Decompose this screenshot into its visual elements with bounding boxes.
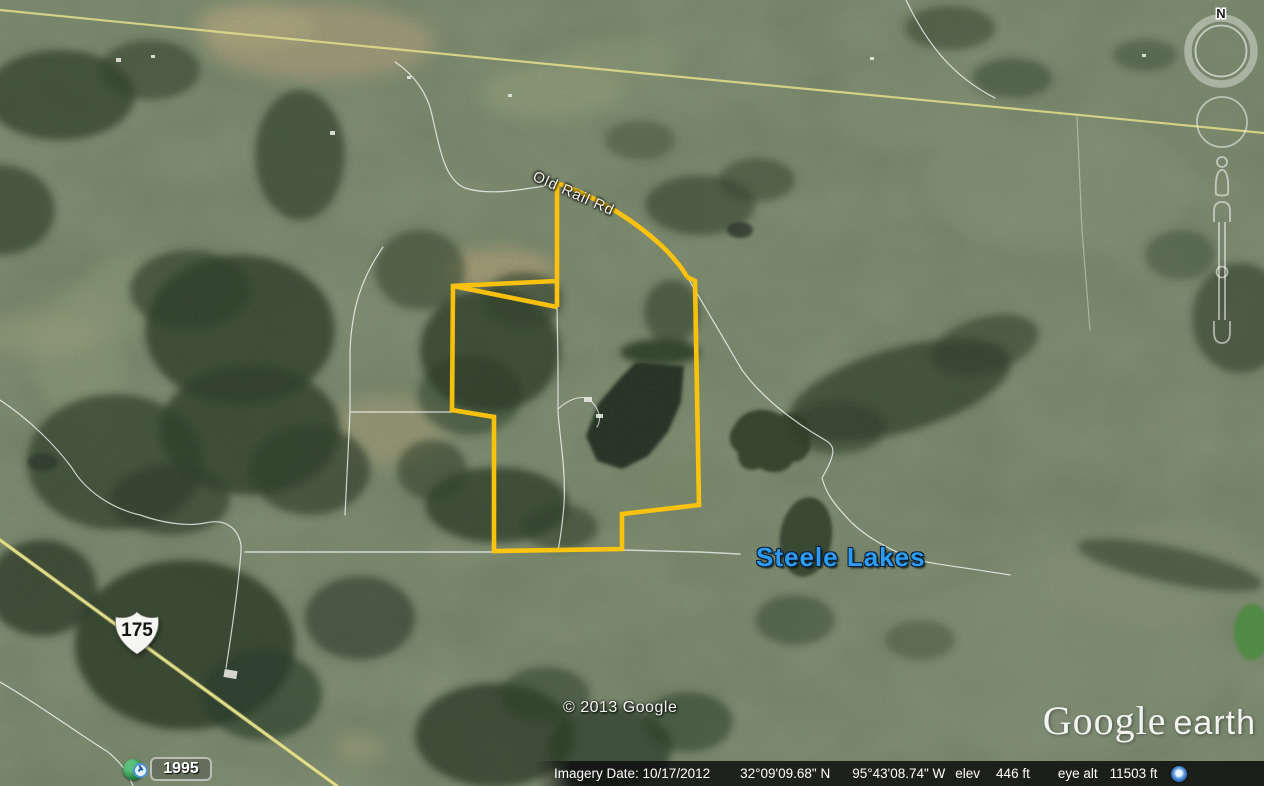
elev-label: elev <box>955 766 980 781</box>
historical-imagery-marker[interactable]: 1995 <box>123 757 212 781</box>
longitude-readout: 95°43'08.74" W <box>852 766 945 781</box>
eye-altitude-readout: 11503 ft <box>1110 766 1158 781</box>
imagery-date: Imagery Date: 10/17/2012 <box>554 766 710 781</box>
logo-earth: earth <box>1174 704 1257 743</box>
navigation-controls[interactable]: N <box>1174 0 1264 360</box>
satellite-map[interactable] <box>0 0 1264 786</box>
clock-icon[interactable] <box>123 758 146 781</box>
zoom-out-button[interactable] <box>1214 321 1230 343</box>
copyright-text: © 2013 Google <box>563 699 677 717</box>
imagery-year-badge[interactable]: 1995 <box>150 757 212 781</box>
elevation-readout: 446 ft <box>996 766 1030 781</box>
pan-control[interactable] <box>1197 97 1247 147</box>
google-earth-window: Old Rail Rd Steele Lakes © 2013 Google 1… <box>0 0 1264 786</box>
zoom-track[interactable] <box>1219 222 1225 320</box>
latitude-readout: 32°09'09.68" N <box>740 766 830 781</box>
north-indicator[interactable]: N <box>1216 6 1225 21</box>
place-label-steele-lakes: Steele Lakes <box>756 542 926 573</box>
zoom-in-button[interactable] <box>1214 202 1230 222</box>
pegman-icon[interactable] <box>1216 157 1229 196</box>
highway-number: 175 <box>112 620 162 642</box>
compass-look-control[interactable]: N <box>1188 6 1254 84</box>
streaming-indicator-icon <box>1171 766 1187 782</box>
logo-google: Google <box>1043 697 1167 744</box>
zoom-slider[interactable] <box>1214 202 1230 343</box>
google-earth-logo: Google earth <box>1043 697 1256 744</box>
highway-shield-175: 175 <box>112 611 162 656</box>
status-bar: Imagery Date: 10/17/2012 32°09'09.68" N … <box>536 761 1264 786</box>
eye-alt-label: eye alt <box>1058 766 1098 781</box>
terrain-speckle <box>0 0 1264 786</box>
